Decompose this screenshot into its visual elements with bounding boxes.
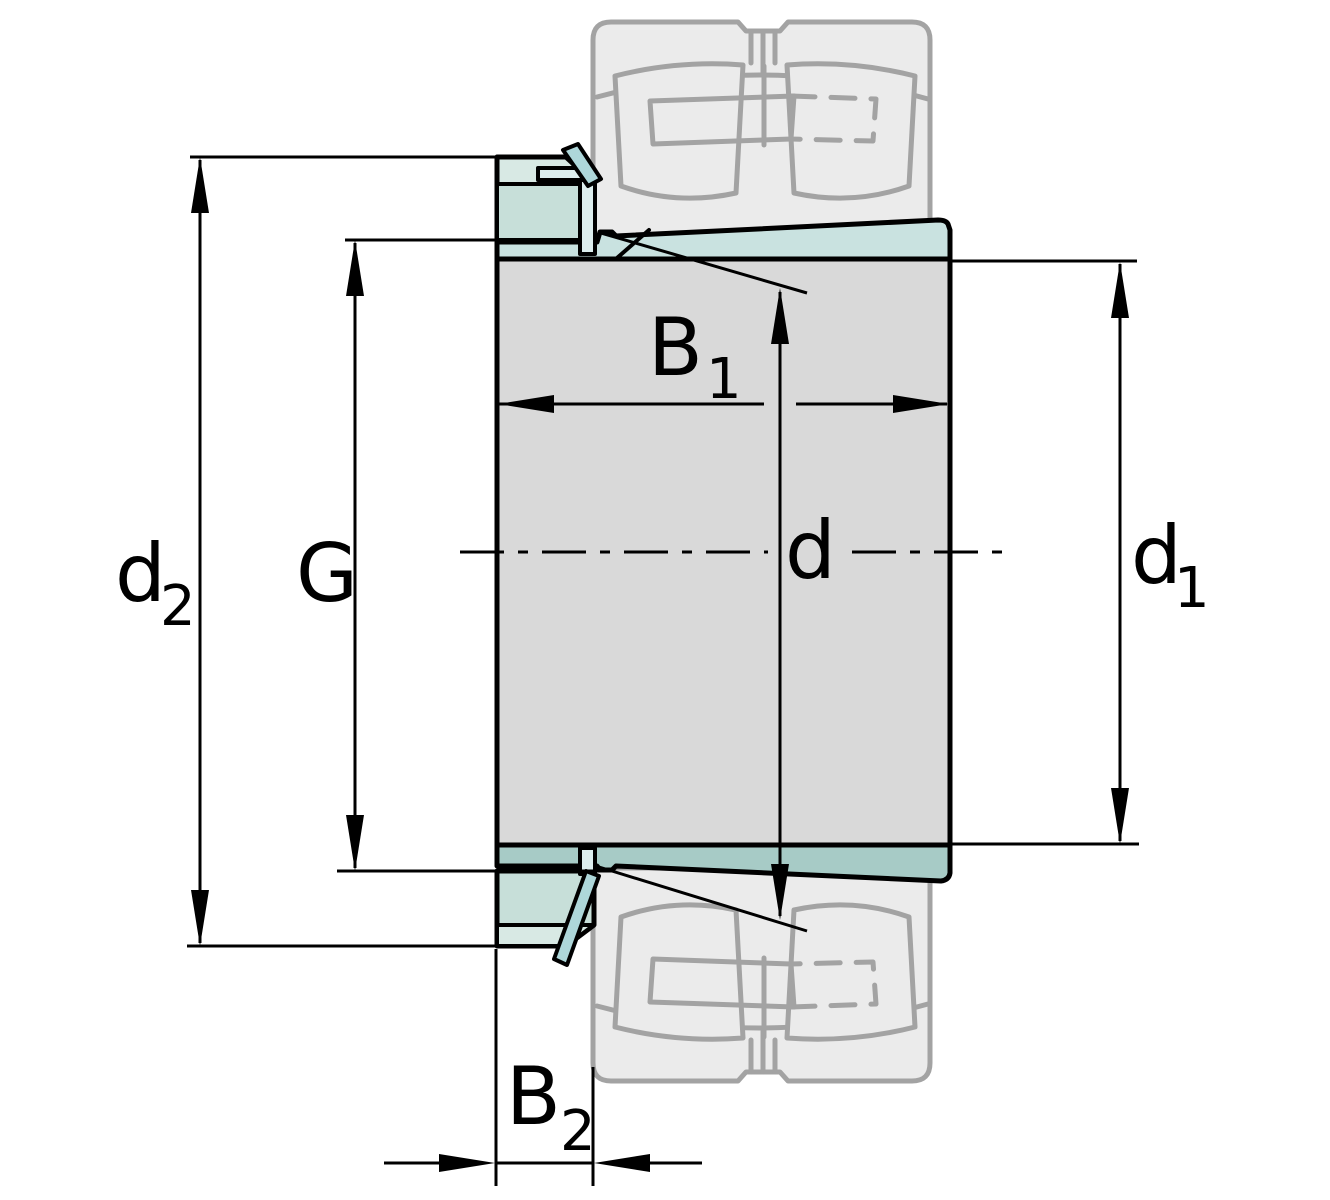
lock-washer-top (580, 180, 595, 254)
ghost-roller-left-top (615, 64, 743, 198)
lock-nut-top (497, 144, 601, 254)
label-B1-sub: 1 (706, 347, 742, 412)
label-B1: B (648, 301, 703, 394)
label-B2-sub: 2 (560, 1099, 596, 1164)
label-B2: B (506, 1050, 561, 1143)
label-G: G (296, 527, 358, 620)
ghost-roller-right-top (787, 64, 915, 198)
ghost-roller-right-bottom (787, 905, 915, 1039)
ghost-bearing-top (593, 22, 930, 238)
adapter-sleeve-technical-drawing: d 2 G B 1 d d 1 B 2 (0, 0, 1330, 1200)
label-d: d (785, 504, 836, 597)
ghost-bearing-bottom (593, 868, 930, 1081)
ghost-roller-left-bottom (615, 905, 743, 1039)
label-d2: d (115, 527, 166, 620)
label-d1-sub: 1 (1174, 556, 1210, 621)
label-d2-sub: 2 (160, 574, 196, 639)
dimension-d1 (952, 261, 1139, 844)
